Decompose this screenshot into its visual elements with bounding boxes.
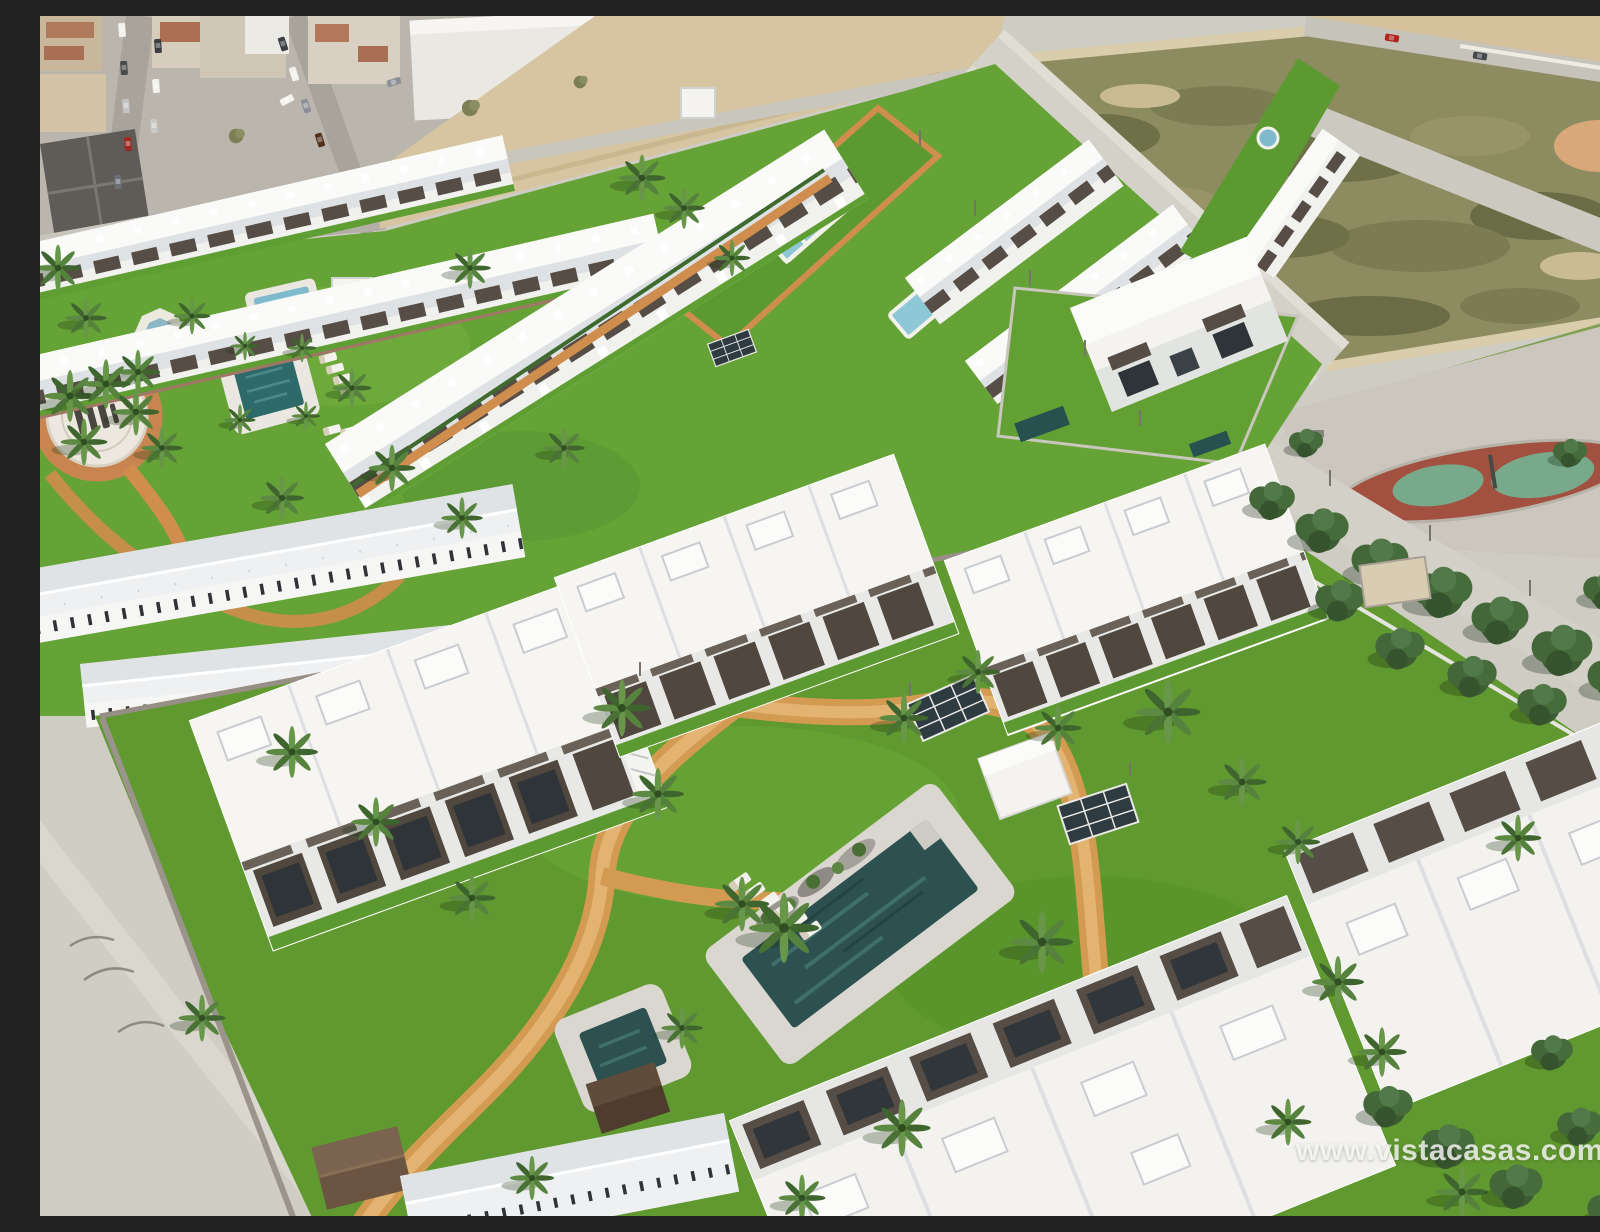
scene-svg — [40, 16, 1600, 1216]
aerial-render: www.vistacasas.com — [40, 16, 1600, 1216]
